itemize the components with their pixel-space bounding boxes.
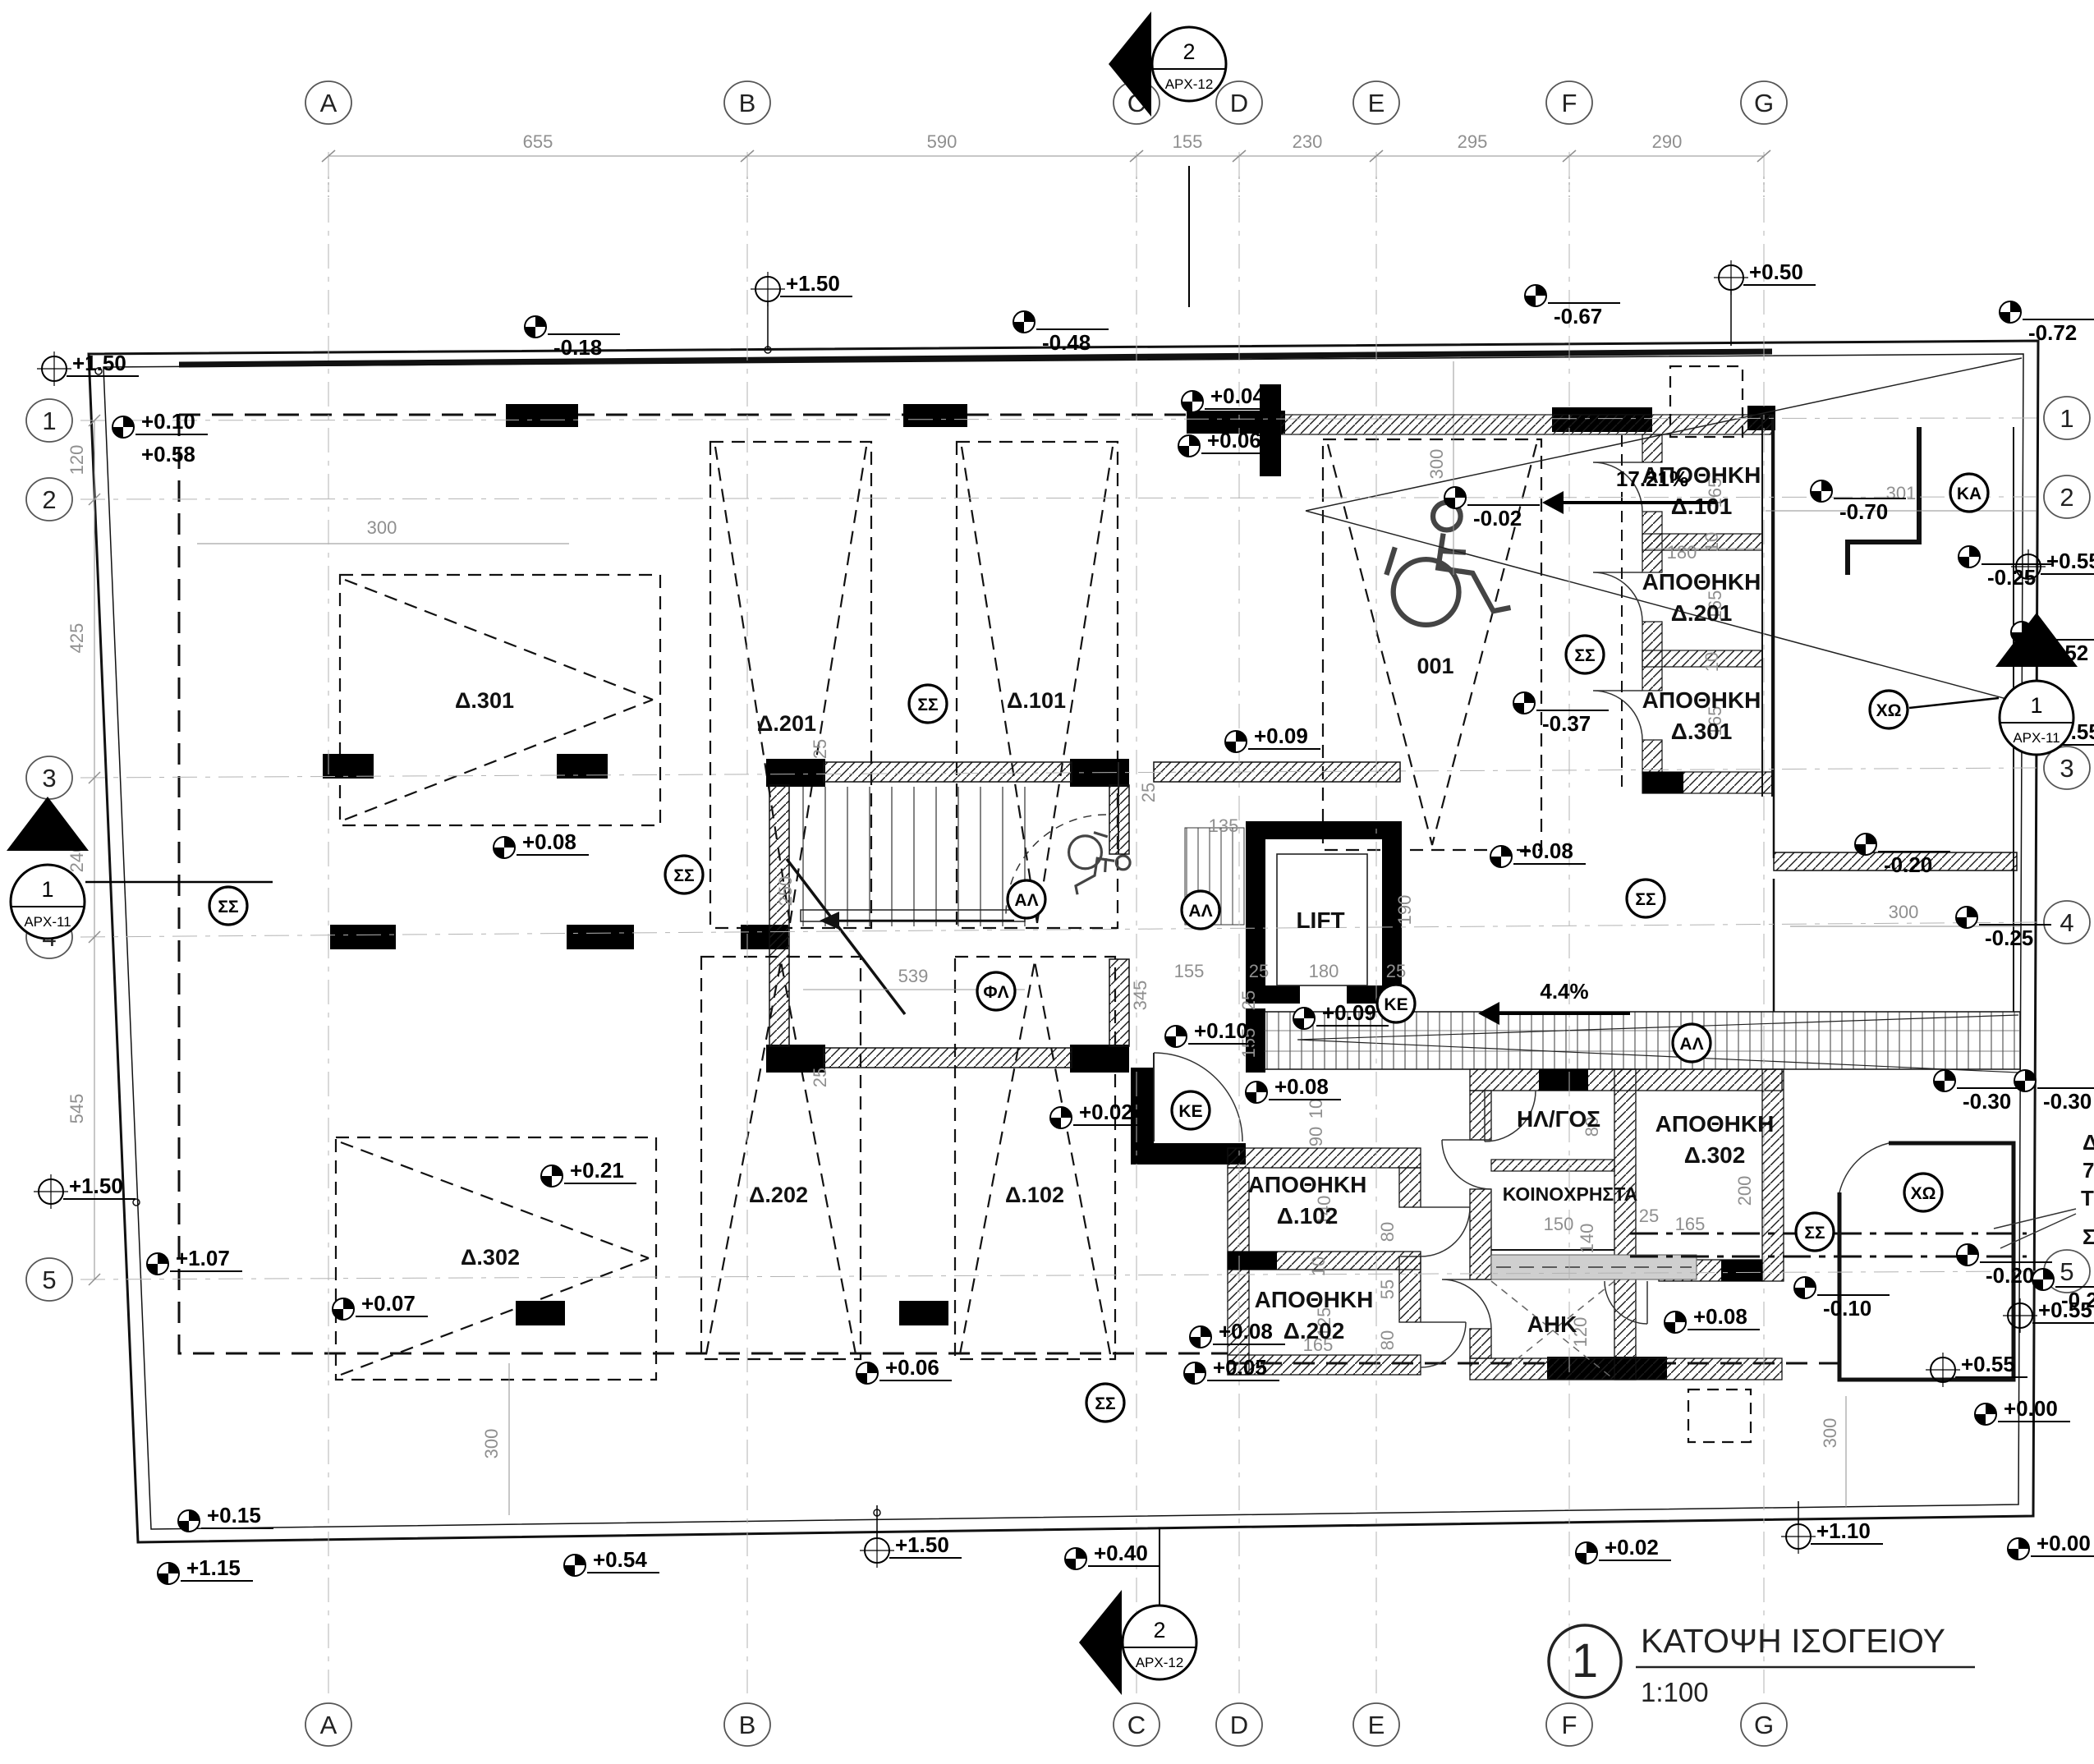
level-marker: -0.18 xyxy=(525,316,620,360)
parking-label: Δ.201 xyxy=(757,711,816,736)
label: ΣΣ xyxy=(1574,646,1595,665)
level-marker: +0.10 xyxy=(1165,1018,1261,1047)
symbol-ΧΩ: ΧΩ xyxy=(1870,691,1908,728)
section-marker-ΑΡΧ-11: 1ΑΡΧ-11 xyxy=(1909,613,2078,755)
level-marker: +0.40 xyxy=(1065,1541,1160,1569)
dim-text: 301 xyxy=(1886,483,1917,503)
level-marker: +0.09 xyxy=(1293,1000,1389,1029)
level-marker: +0.02 xyxy=(1050,1100,1146,1128)
dim-text: 10 xyxy=(1306,1099,1326,1119)
level-marker: +0.15 xyxy=(178,1503,273,1532)
level-value: +0.55 xyxy=(2038,1298,2092,1322)
symbol-ΚΑ: ΚΑ xyxy=(1950,474,1988,512)
level-value: +0.09 xyxy=(1254,724,1308,748)
dim-text: 300 xyxy=(367,517,397,538)
level-marker: +1.50 xyxy=(34,1174,135,1209)
floor-plan-drawing: AABBCCDDEEFFGG11223344556555901552302952… xyxy=(0,0,2094,1764)
room-label: ΑΗΚ xyxy=(1527,1312,1577,1337)
level-value: -0.18 xyxy=(553,335,602,360)
room-label: Δ.301 xyxy=(1671,719,1733,744)
dim-text: 300 xyxy=(1820,1418,1840,1449)
level-marker: -0.72 xyxy=(2000,301,2094,345)
grid-bubble-label-D: D xyxy=(1230,1711,1248,1739)
level-value-lower: +0.58 xyxy=(141,442,195,466)
stair-treads xyxy=(803,787,1025,926)
drawing-scale: 1:100 xyxy=(1641,1677,1709,1707)
level-value: -0.48 xyxy=(1042,330,1091,355)
dim-text: 300 xyxy=(481,1429,502,1459)
level-marker: +0.10+0.58 xyxy=(113,409,208,466)
dim-text: 25 xyxy=(1249,961,1269,981)
label: 1 xyxy=(2030,693,2042,718)
room-label: ΑΠΟΘΗΚΗ xyxy=(1642,569,1761,595)
dim-text: 25 xyxy=(1639,1206,1659,1226)
level-value: +0.02 xyxy=(1605,1535,1659,1560)
level-value: +0.55 xyxy=(2046,549,2094,573)
level-value: +1.50 xyxy=(72,351,126,375)
symbol-ΣΣ: ΣΣ xyxy=(1086,1384,1124,1422)
level-value: -0.72 xyxy=(2028,320,2077,345)
room-label: ΑΠΟΘΗΚΗ xyxy=(1248,1172,1367,1197)
level-value: +0.21 xyxy=(570,1158,624,1183)
grid-bubble-label-C: C xyxy=(1127,1711,1146,1739)
level-marker: -0.25 xyxy=(1959,546,2054,590)
level-value: +0.06 xyxy=(1207,428,1261,452)
label: 2 xyxy=(42,485,56,514)
level-marker: +0.08 xyxy=(1190,1319,1285,1348)
label: ΚΑ xyxy=(1957,485,1981,503)
level-value: -0.37 xyxy=(1542,711,1591,736)
symbol-ΣΣ: ΣΣ xyxy=(209,887,247,925)
slope-value: 4.4% xyxy=(1540,979,1588,1004)
level-value: -0.67 xyxy=(1554,304,1602,328)
label: 2 xyxy=(2060,483,2073,512)
level-value: +0.07 xyxy=(361,1291,416,1316)
level-marker: +1.50 xyxy=(751,271,852,349)
label: 1 xyxy=(42,407,56,435)
level-value: +1.50 xyxy=(895,1532,949,1557)
dim-text: 140 xyxy=(1577,1224,1597,1254)
symbol-ΣΣ: ΣΣ xyxy=(1566,636,1604,673)
grid-bubble-label-E: E xyxy=(1368,89,1385,117)
dim-text: 345 xyxy=(1130,981,1150,1011)
level-marker: -0.67 xyxy=(1525,285,1620,328)
dim-text: 165 xyxy=(1675,1214,1706,1234)
dim-text: 25 xyxy=(810,739,830,759)
symbol-ΑΛ: ΑΛ xyxy=(1008,880,1045,918)
level-marker: +0.21 xyxy=(541,1158,636,1187)
level-marker: +1.07 xyxy=(147,1246,242,1275)
level-marker: +0.55 xyxy=(1926,1352,2027,1387)
label: ΑΡΧ-11 xyxy=(2013,730,2060,746)
level-value: +0.00 xyxy=(2037,1531,2091,1555)
level-marker: +1.10 xyxy=(1781,1501,1883,1554)
dim-text: 590 xyxy=(927,131,957,152)
label: 2 xyxy=(1153,1618,1165,1642)
label: ΑΡΧ-11 xyxy=(24,914,71,930)
label: ΣΣ xyxy=(1095,1394,1115,1413)
level-marker: +0.08 xyxy=(1665,1304,1760,1333)
level-marker: +0.08 xyxy=(1246,1074,1341,1103)
grid-bubble-label-B: B xyxy=(739,1711,756,1739)
room-label: ΑΠΟΘΗΚΗ xyxy=(1655,1111,1775,1137)
parking-label: Δ.202 xyxy=(749,1183,808,1207)
label: 1 xyxy=(41,877,53,902)
dim-text: 190 xyxy=(1394,895,1415,926)
parking-label: Δ.101 xyxy=(1007,688,1066,713)
level-marker: +0.55 xyxy=(2003,1298,2094,1333)
level-value: -0.25 xyxy=(1985,926,2033,950)
label: ΑΡΧ-12 xyxy=(1165,76,1214,92)
level-marker: +0.55 xyxy=(2011,549,2094,584)
level-value: +0.06 xyxy=(885,1355,939,1380)
level-value: +0.50 xyxy=(1749,260,1803,284)
level-value: -0.30 xyxy=(2043,1089,2092,1114)
symbol-ΑΛ: ΑΛ xyxy=(1673,1024,1711,1062)
level-marker: +0.02 xyxy=(1576,1535,1671,1564)
level-marker: -0.37 xyxy=(1513,692,1609,736)
label: ΣΣ xyxy=(673,866,694,885)
level-value: +0.09 xyxy=(1322,1000,1376,1025)
dim-text: 135 xyxy=(1209,815,1239,836)
label: ΧΩ xyxy=(1876,701,1902,720)
clipped-edge-text: 7 xyxy=(2083,1158,2094,1183)
level-marker: +0.05 xyxy=(1184,1355,1279,1384)
dim-text: 25 xyxy=(1138,783,1159,802)
parking-label: Δ.102 xyxy=(1005,1183,1064,1207)
level-value: +1.07 xyxy=(176,1246,230,1270)
level-marker: +0.04 xyxy=(1182,384,1277,412)
grid-bubble-label-A: A xyxy=(320,89,338,117)
room-label: Δ.102 xyxy=(1277,1203,1339,1229)
dim-text: 425 xyxy=(67,623,87,654)
floor-plan-sheet: AABBCCDDEEFFGG11223344556555901552302952… xyxy=(0,0,2094,1764)
dim-text: 545 xyxy=(67,1094,87,1124)
level-value: +0.05 xyxy=(1213,1355,1267,1380)
level-marker: +1.15 xyxy=(158,1555,253,1584)
parking-label: 001 xyxy=(1417,654,1453,678)
symbol-ΧΩ: ΧΩ xyxy=(1904,1174,1942,1211)
dim-text: 80 xyxy=(1377,1222,1398,1242)
level-value: +0.15 xyxy=(207,1503,261,1527)
level-value: -0.20 xyxy=(1884,852,1932,877)
level-value: -0.02 xyxy=(1473,506,1522,531)
room-label: Δ.302 xyxy=(1684,1142,1746,1168)
level-value: +1.15 xyxy=(186,1555,241,1580)
grid-bubble-label-B: B xyxy=(739,89,756,117)
dim-text: 10 xyxy=(1701,532,1722,552)
grid-bubble-label-D: D xyxy=(1230,89,1248,117)
grid-bubble-label-F: F xyxy=(1562,89,1577,117)
dim-text: 80 xyxy=(1377,1330,1398,1350)
grid-bubble-label-A: A xyxy=(320,1711,338,1739)
dim-text: 25 xyxy=(810,1068,830,1087)
room-label: LIFT xyxy=(1296,907,1344,933)
level-value: +0.10 xyxy=(1194,1018,1248,1043)
grid-bubble-label-F: F xyxy=(1562,1711,1577,1739)
dim-text: 250 xyxy=(775,876,796,907)
label: ΣΣ xyxy=(1804,1224,1825,1243)
label: 5 xyxy=(42,1266,56,1294)
label: ΦΛ xyxy=(983,983,1008,1002)
dim-text: 180 xyxy=(1309,961,1339,981)
level-marker: +0.50 xyxy=(1714,260,1816,346)
dim-text: 655 xyxy=(523,131,553,152)
level-value: +1.50 xyxy=(69,1174,123,1198)
clipped-edge-text: ΤΟ xyxy=(2081,1186,2094,1210)
disabled-parking-001 xyxy=(1323,439,1541,850)
level-marker: +0.08 xyxy=(1490,838,1586,867)
dim-text: 300 xyxy=(1889,902,1919,922)
dim-text: 539 xyxy=(898,966,929,986)
parking-label: Δ.302 xyxy=(461,1245,520,1270)
dim-text: 10 xyxy=(1701,652,1722,672)
clipped-edge-text: Σ xyxy=(2083,1224,2094,1249)
label: 5 xyxy=(2060,1257,2073,1286)
title-block: 1 ΚΑΤΟΨΗ ΙΣΟΓΕΙΟΥ 1:100 xyxy=(1549,1622,1975,1707)
level-value: -0.10 xyxy=(1823,1296,1871,1321)
symbol-ΣΣ: ΣΣ xyxy=(1796,1213,1834,1251)
level-value: +0.08 xyxy=(1693,1304,1747,1329)
level-value: +0.40 xyxy=(1094,1541,1148,1565)
label: 3 xyxy=(42,764,56,792)
symbol-ΦΛ: ΦΛ xyxy=(977,972,1015,1010)
symbol-ΣΣ: ΣΣ xyxy=(1627,880,1665,917)
symbol-ΣΣ: ΣΣ xyxy=(909,685,947,723)
label: 4 xyxy=(2060,908,2073,937)
label: 1 xyxy=(2060,404,2073,433)
section-marker-ΑΡΧ-12: 2ΑΡΧ-12 xyxy=(1109,11,1226,307)
level-marker: -0.25 xyxy=(1956,907,2051,950)
retaining-wall-top xyxy=(179,351,1772,365)
level-value: +0.08 xyxy=(1519,838,1573,863)
symbol-ΚΕ: ΚΕ xyxy=(1172,1091,1210,1129)
label: ΑΛ xyxy=(1188,902,1212,921)
room-label: Δ.202 xyxy=(1283,1318,1345,1344)
level-value: -0.70 xyxy=(1839,499,1888,524)
symbol-ΣΣ: ΣΣ xyxy=(665,856,703,893)
grid-bubble-label-G: G xyxy=(1754,89,1774,117)
level-value: +0.08 xyxy=(1274,1074,1329,1099)
level-value: +0.55 xyxy=(1961,1352,2015,1376)
level-marker: +0.00 xyxy=(1975,1396,2070,1425)
label: ΚΕ xyxy=(1178,1102,1202,1121)
label: ΑΛ xyxy=(1014,891,1038,910)
room-label: ΑΠΟΘΗΚΗ xyxy=(1255,1287,1374,1312)
label: ΣΣ xyxy=(1635,890,1655,909)
stair-break-line xyxy=(787,859,905,1014)
label: ΣΣ xyxy=(218,898,238,916)
label: 3 xyxy=(2060,754,2073,783)
dim-text: 300 xyxy=(1426,449,1447,480)
room-label: Δ.101 xyxy=(1671,494,1733,519)
level-value: +1.10 xyxy=(1816,1518,1871,1543)
room-label: Δ.201 xyxy=(1671,600,1733,626)
level-value: -0.20 xyxy=(1986,1263,2034,1288)
level-value: -0.30 xyxy=(1963,1089,2011,1114)
level-value: +1.50 xyxy=(786,271,840,296)
grid-bubble-label-E: E xyxy=(1368,1711,1385,1739)
dim-text: 290 xyxy=(1652,131,1683,152)
symbol-ΚΕ: ΚΕ xyxy=(1377,985,1415,1022)
level-marker: +0.54 xyxy=(564,1547,659,1576)
parking-label: Δ.301 xyxy=(455,688,514,713)
dim-text: 25 xyxy=(1238,990,1259,1010)
dim-text: 120 xyxy=(67,445,87,475)
level-marker: +0.00 xyxy=(2008,1531,2094,1560)
dim-text: 10 xyxy=(1308,1256,1329,1276)
dim-text: 155 xyxy=(1173,131,1203,152)
level-value: +0.08 xyxy=(1219,1319,1273,1344)
dim-text: 155 xyxy=(1174,961,1205,981)
clipped-edge-text: Δ xyxy=(2083,1130,2094,1155)
room-label: ΗΛ/ΓΟΣ xyxy=(1517,1106,1600,1132)
dim-text: 200 xyxy=(1734,1176,1755,1206)
label: ΧΩ xyxy=(1911,1184,1936,1203)
level-marker: +0.06 xyxy=(856,1355,952,1384)
level-value: +0.54 xyxy=(593,1547,647,1572)
dim-text: 55 xyxy=(1377,1279,1398,1299)
level-value: +0.04 xyxy=(1210,384,1265,408)
label: ΑΡΧ-12 xyxy=(1136,1655,1184,1670)
level-value: +0.08 xyxy=(522,829,576,854)
slope-value: 17.21% xyxy=(1616,466,1688,491)
level-value: +0.10 xyxy=(141,409,195,434)
label: ΣΣ xyxy=(917,696,938,714)
level-marker: +0.07 xyxy=(333,1291,428,1320)
label: ΚΕ xyxy=(1384,995,1407,1014)
dim-text: 25 xyxy=(1386,961,1406,981)
level-value: +0.00 xyxy=(2004,1396,2058,1421)
level-marker: +0.08 xyxy=(494,829,589,858)
room-label: ΚΟΙΝΟΧΡΗΣΤΑ xyxy=(1503,1183,1637,1205)
gridline-row-2 xyxy=(80,497,2038,499)
level-marker: -0.10 xyxy=(1794,1277,1890,1321)
dim-text: 230 xyxy=(1293,131,1323,152)
dim-text: 150 xyxy=(1544,1214,1574,1234)
dim-text: 90 xyxy=(1306,1127,1326,1146)
level-marker: -0.30 xyxy=(2014,1070,2094,1114)
level-value: +0.02 xyxy=(1079,1100,1133,1124)
room-label: ΑΠΟΘΗΚΗ xyxy=(1642,687,1761,713)
label: 2 xyxy=(1182,39,1195,64)
label: ΑΛ xyxy=(1679,1035,1703,1054)
drawing-number: 1 xyxy=(1572,1634,1598,1688)
dim-text: 295 xyxy=(1458,131,1488,152)
stair-core xyxy=(769,762,1129,1068)
grid-bubble-label-G: G xyxy=(1754,1711,1774,1739)
symbol-ΑΛ: ΑΛ xyxy=(1182,891,1219,929)
drawing-title: ΚΑΤΟΨΗ ΙΣΟΓΕΙΟΥ xyxy=(1641,1622,1945,1660)
level-marker: +1.50 xyxy=(37,351,139,386)
dim-text: 180 xyxy=(1667,542,1697,563)
